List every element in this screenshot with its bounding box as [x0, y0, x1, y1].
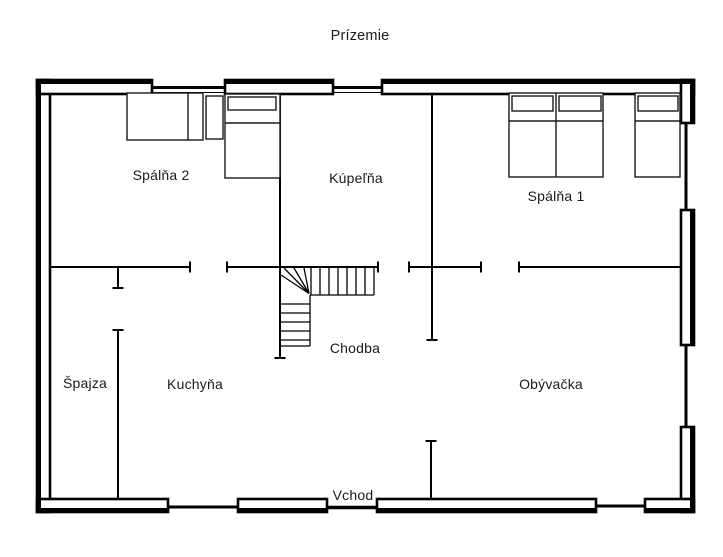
window-top-1: [152, 88, 225, 93]
window-top-2: [333, 88, 382, 93]
bed-spalna2: [225, 94, 280, 178]
room-label-spajza: Špajza: [63, 375, 107, 391]
plan-title: Prízemie: [331, 28, 390, 44]
door-opening-ticks: [113, 262, 520, 442]
entrance-label: Vchod: [333, 487, 374, 503]
room-label-chodba: Chodba: [330, 340, 380, 356]
staircase: [281, 268, 374, 346]
wardrobe-spalna2: [127, 93, 203, 140]
double-bed-spalna1: [509, 93, 603, 177]
floor-plan: Prízemie Spálňa 2 Kúpeľňa Spálňa 1 Špajz…: [0, 0, 723, 557]
room-label-spalna-1: Spálňa 1: [528, 188, 585, 204]
room-label-obyvacka: Obývačka: [519, 376, 583, 392]
furniture: [127, 93, 680, 178]
room-label-spalna-2: Spálňa 2: [133, 167, 190, 183]
room-label-kupelna: Kúpeľňa: [329, 170, 383, 186]
room-label-kuchyna: Kuchyňa: [167, 376, 223, 392]
nightstand-spalna2: [206, 96, 223, 139]
single-bed-spalna1: [635, 93, 680, 177]
floor-plan-drawing: [0, 0, 723, 557]
